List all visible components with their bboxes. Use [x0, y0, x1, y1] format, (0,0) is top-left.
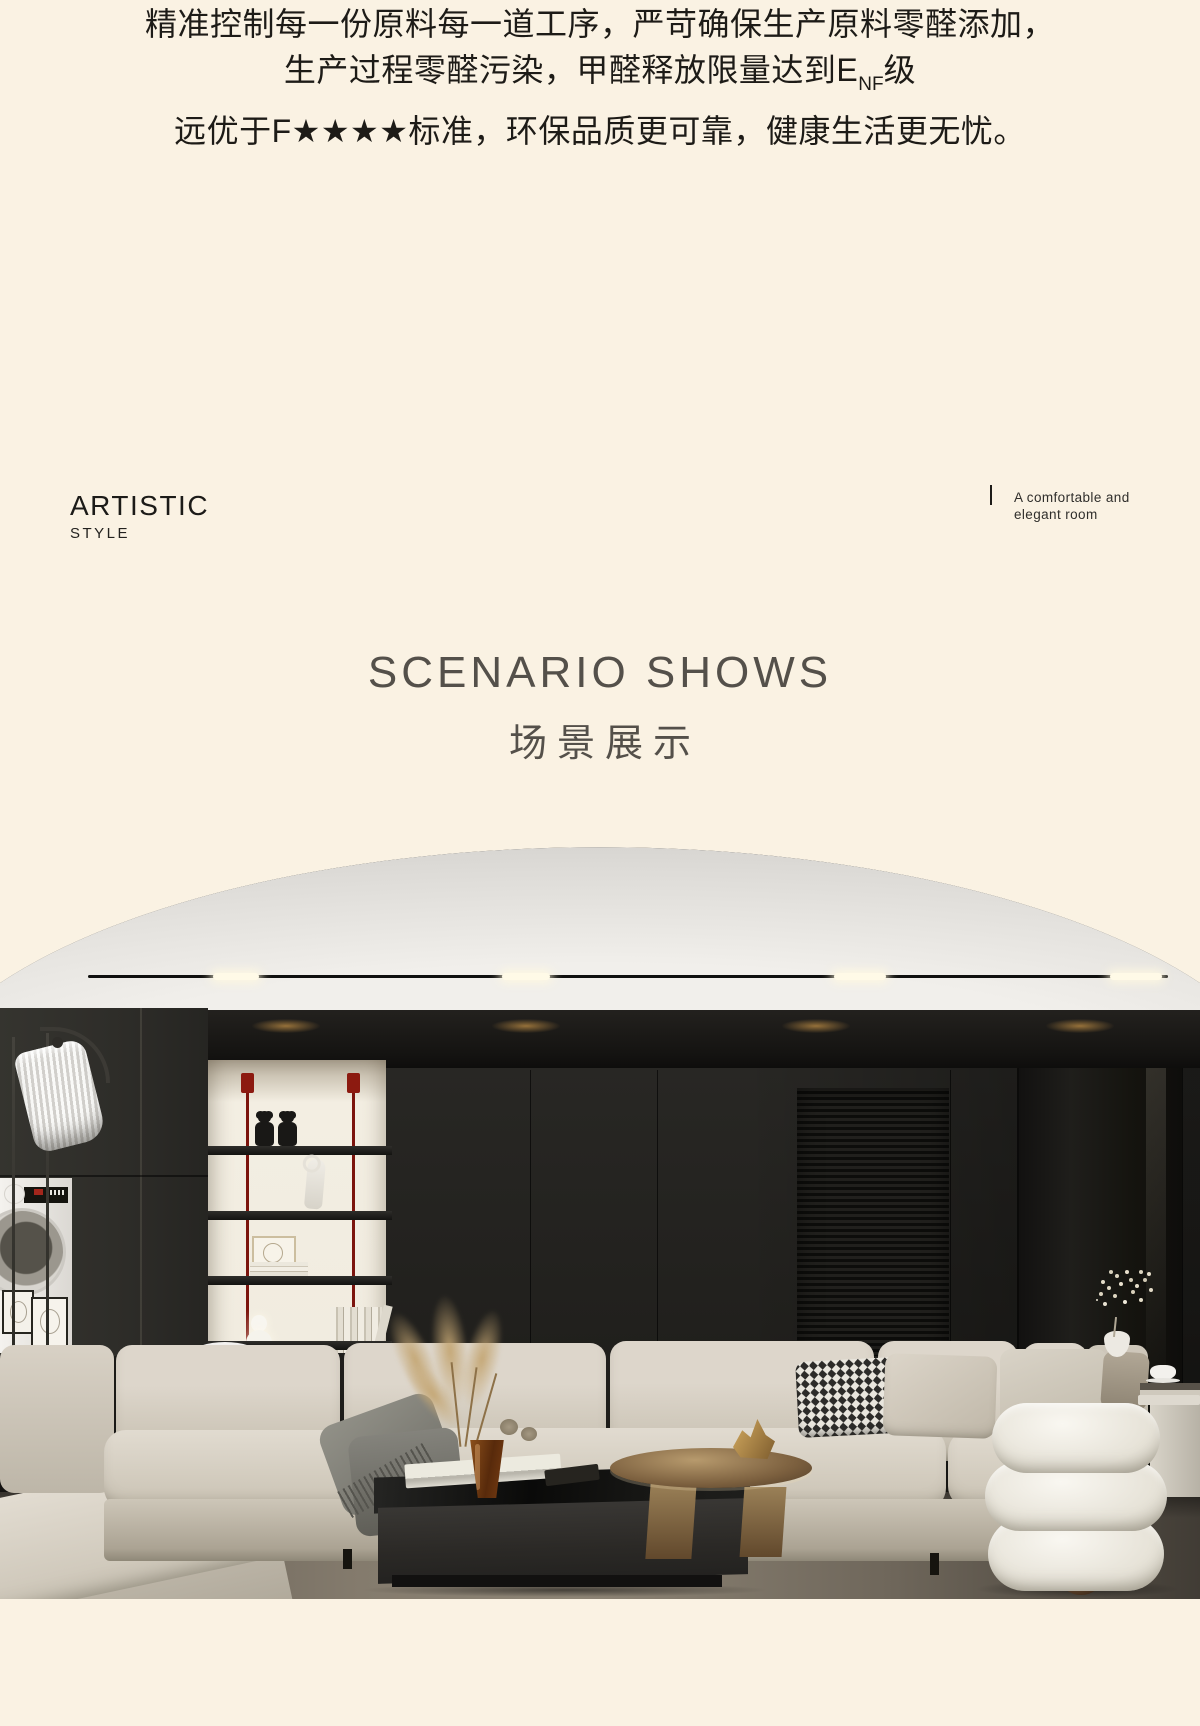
- hero-scene-image: [0, 847, 1200, 1599]
- intro-line-2: 生产过程零醛污染，甲醛释放限量达到ENF级: [0, 47, 1200, 108]
- enf-subscript: NF: [858, 74, 883, 95]
- artistic-title: ARTISTIC: [70, 492, 209, 520]
- niche-rod-clamp: [347, 1073, 360, 1093]
- niche-shelf: [202, 1276, 392, 1285]
- bearbrick-figure: [254, 1111, 275, 1146]
- bronze-table-leg: [740, 1487, 787, 1557]
- niche-shelf: [202, 1211, 392, 1220]
- floor-lamp-joint: [52, 1037, 63, 1048]
- coffee-table-plinth: [392, 1575, 722, 1587]
- sofa-leg: [343, 1549, 352, 1569]
- bronze-table-leg: [645, 1483, 696, 1559]
- downlight-glow: [492, 1019, 560, 1033]
- downlight-glow: [782, 1019, 850, 1033]
- side-note-divider: [990, 485, 992, 505]
- downlight-glow: [1046, 1019, 1114, 1033]
- intro-line-1: 精准控制每一份原料每一道工序，严苛确保生产原料零醛添加，: [0, 1, 1200, 47]
- side-note-line-1: A comfortable and: [1014, 490, 1130, 507]
- dried-flowers: [1096, 1299, 1098, 1301]
- niche-rod-clamp: [241, 1073, 254, 1093]
- dried-flower-head: [521, 1427, 537, 1441]
- boucle-pouf-ring: [992, 1403, 1160, 1473]
- panel-seam: [530, 1070, 531, 1350]
- slatted-wall-panel: [797, 1088, 949, 1356]
- track-light-segment: [502, 973, 550, 980]
- washer-indicator: [34, 1189, 43, 1195]
- ceiling: [0, 847, 1200, 1012]
- washer-door: [0, 1208, 66, 1296]
- track-light-segment: [834, 973, 886, 980]
- dried-flower-head: [500, 1419, 518, 1435]
- bronze-side-table: [610, 1448, 812, 1488]
- artistic-subtitle: STYLE: [70, 525, 209, 542]
- niche-shelf: [202, 1146, 392, 1155]
- side-note-line-2: elegant room: [1014, 507, 1130, 524]
- panel-seam: [657, 1070, 658, 1370]
- coffee-cup: [1150, 1365, 1176, 1380]
- section-title-zh: 场景展示: [0, 712, 1200, 767]
- side-note: A comfortable and elegant room: [1014, 490, 1130, 523]
- beige-pillow: [883, 1353, 998, 1439]
- sofa-leg: [930, 1553, 939, 1575]
- intro-paragraph: 精准控制每一份原料每一道工序，严苛确保生产原料零醛添加， 生产过程零醛污染，甲醛…: [0, 1, 1200, 154]
- floor-lamp-pole: [12, 1037, 15, 1367]
- photo-frame: [31, 1297, 68, 1347]
- section-title-en: SCENARIO SHOWS: [0, 648, 1200, 698]
- photo-frame: [2, 1290, 34, 1334]
- track-light-segment: [213, 973, 259, 980]
- panel-seam: [950, 1070, 951, 1370]
- hallway-light: [1146, 1068, 1166, 1378]
- sofa-left-arm: [0, 1345, 114, 1493]
- track-light-segment: [1110, 973, 1162, 980]
- artistic-style-block: ARTISTIC STYLE: [70, 492, 209, 542]
- side-table-top: [1138, 1395, 1200, 1405]
- intro-line-3: 远优于F★★★★标准，环保品质更可靠，健康生活更无忧。: [0, 108, 1200, 154]
- bearbrick-figure: [277, 1111, 298, 1146]
- downlight-glow: [252, 1019, 320, 1033]
